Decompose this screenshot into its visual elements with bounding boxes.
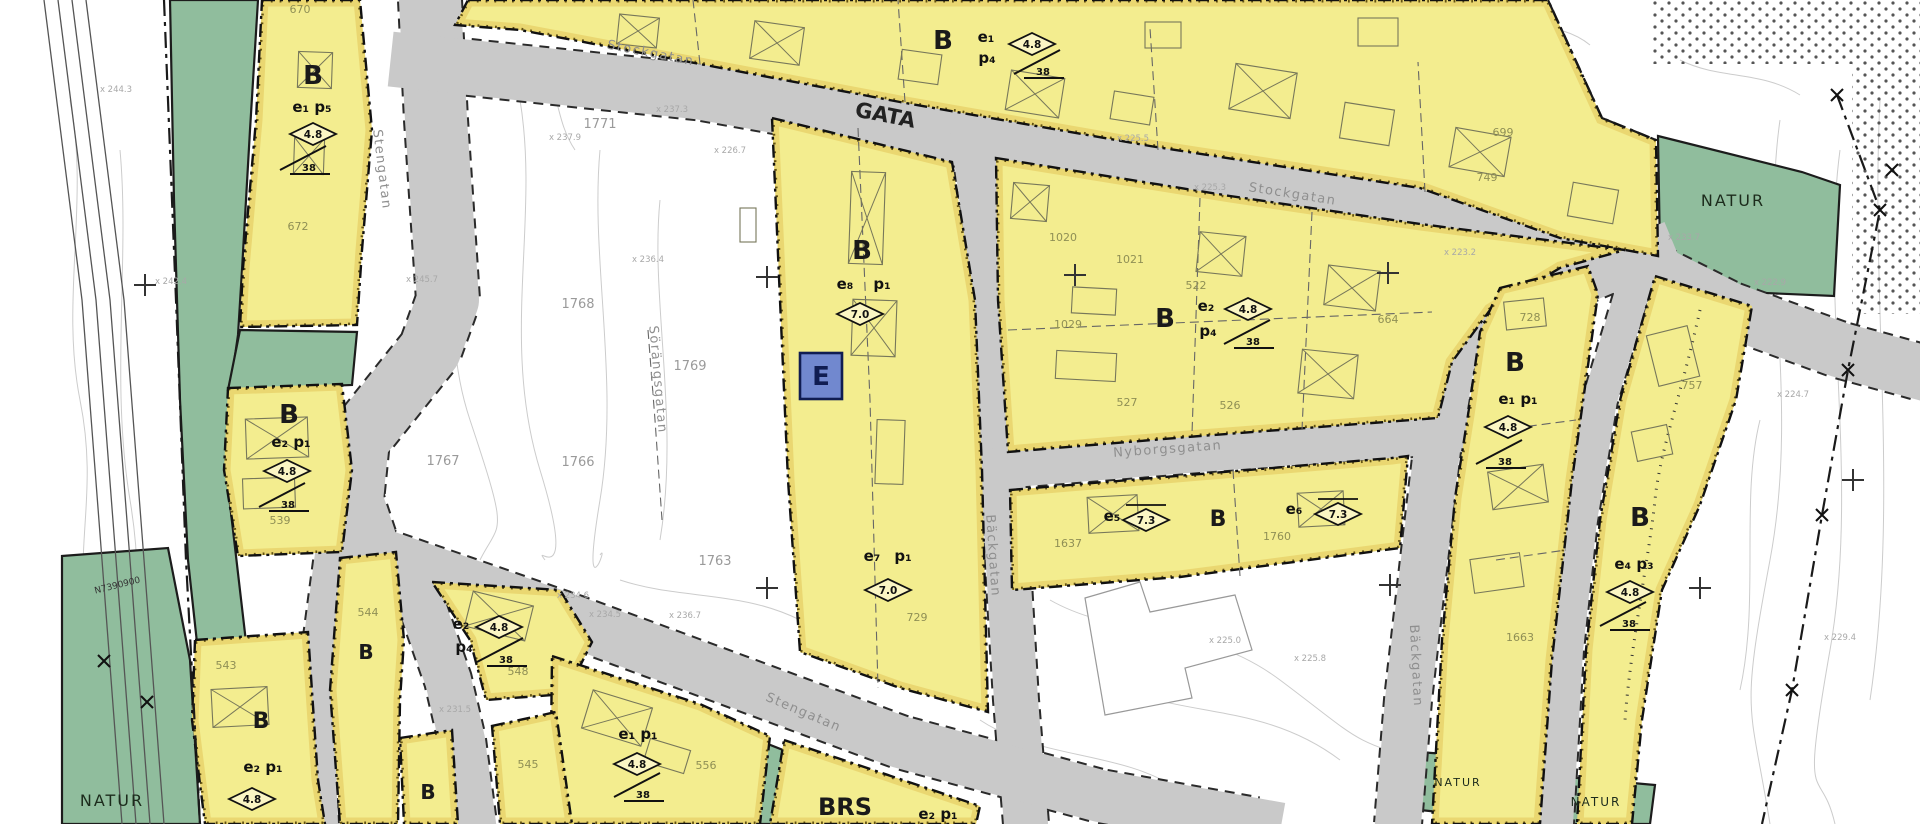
use-code-label: e₇ bbox=[864, 547, 881, 565]
nature-label: NATUR bbox=[80, 791, 144, 810]
use-code-label: e₂ p₁ bbox=[918, 805, 957, 823]
lot-number: 548 bbox=[508, 665, 529, 678]
use-code-label: e₈ bbox=[837, 275, 854, 293]
lot-number: 729 bbox=[907, 611, 928, 624]
elevation-mark: x 234.6 bbox=[557, 591, 589, 601]
lot-number: 1769 bbox=[673, 359, 706, 374]
nature-label: NATUR bbox=[1701, 191, 1765, 210]
use-code-label: p₄ bbox=[455, 638, 472, 656]
diamond-value: 7.0 bbox=[851, 309, 870, 321]
lot-number: 1771 bbox=[583, 117, 616, 132]
elevation-mark: x 244.3 bbox=[100, 85, 132, 95]
lot-number: 670 bbox=[290, 3, 311, 16]
nature-label: NATUR bbox=[1434, 776, 1481, 789]
lot-number: 1637 bbox=[1054, 537, 1082, 550]
lot-number: 1021 bbox=[1116, 253, 1144, 266]
diamond-value: 4.8 bbox=[1621, 587, 1640, 599]
diamond-value: 4.8 bbox=[1239, 304, 1258, 316]
use-code-label: e₂ p₁ bbox=[243, 758, 282, 776]
zone-letter: B bbox=[1505, 348, 1525, 378]
lot-number: 699 bbox=[1493, 126, 1514, 139]
diamond-value: 4.8 bbox=[278, 466, 297, 478]
lot-number: 544 bbox=[358, 606, 379, 619]
diamond-value: 4.8 bbox=[1499, 422, 1518, 434]
slope-value: 38 bbox=[1036, 67, 1050, 78]
zone-letter: B bbox=[420, 780, 435, 804]
elevation-mark: x 225.0 bbox=[1209, 636, 1241, 646]
elevation-mark: x 236.7 bbox=[669, 611, 701, 621]
zone-letter: B bbox=[279, 400, 299, 430]
zoning-plan-map: E4.84.87.04.87.37.34.84.84.84.84.84.87.0… bbox=[0, 0, 1920, 824]
lot-number: 672 bbox=[288, 220, 309, 233]
lot-number: 1029 bbox=[1054, 318, 1082, 331]
dotted-terrain bbox=[1852, 62, 1920, 314]
lot-number: 1767 bbox=[426, 454, 459, 469]
elevation-mark: x 225.3 bbox=[1194, 183, 1226, 193]
slope-value: 38 bbox=[1246, 337, 1260, 348]
elevation-mark: x 234.5 bbox=[589, 610, 621, 620]
use-code-label: e₆ bbox=[1286, 500, 1303, 518]
elevation-mark: x 224.7 bbox=[1777, 390, 1809, 400]
use-code-label: e₁ p₁ bbox=[1498, 390, 1537, 408]
elevation-mark: x 225.5 bbox=[1117, 134, 1149, 144]
map-canvas: E4.84.87.04.87.37.34.84.84.84.84.84.87.0… bbox=[0, 0, 1920, 824]
lot-number: 757 bbox=[1682, 379, 1703, 392]
diamond-value: 7.0 bbox=[879, 585, 898, 597]
lot-number: 545 bbox=[518, 758, 539, 771]
slope-value: 38 bbox=[302, 163, 316, 174]
elevation-mark: x 233.7 bbox=[1668, 233, 1700, 243]
lot-number: 749 bbox=[1477, 171, 1498, 184]
lot-number: 527 bbox=[1117, 396, 1138, 409]
zone-letter: B bbox=[358, 640, 373, 664]
use-code-label: p₄ bbox=[1199, 322, 1216, 340]
use-code-label: p₄ bbox=[978, 49, 995, 67]
elevation-mark: x 226.7 bbox=[714, 146, 746, 156]
elevation-mark: x 229.4 bbox=[1824, 633, 1856, 643]
lot-number: 728 bbox=[1520, 311, 1541, 324]
diamond-value: 4.8 bbox=[243, 794, 262, 806]
lot-number: 556 bbox=[696, 759, 717, 772]
use-code-label: e₁ p₁ bbox=[618, 725, 657, 743]
elevation-mark: x 245.7 bbox=[406, 275, 438, 285]
nature-label: NATUR bbox=[1571, 795, 1622, 809]
elevation-mark: x 242.4 bbox=[155, 277, 187, 287]
use-code-label: p₁ bbox=[894, 547, 911, 565]
use-code-label: e₁ p₅ bbox=[292, 98, 331, 116]
lot-number: 1768 bbox=[561, 297, 594, 312]
lot-number: 1766 bbox=[561, 455, 594, 470]
diamond-value: 4.8 bbox=[304, 129, 323, 141]
diamond-value: 7.3 bbox=[1329, 509, 1348, 521]
elevation-mark: x 222.9 bbox=[1754, 278, 1786, 288]
lot-number: 522 bbox=[1186, 279, 1207, 292]
lot-number: 1020 bbox=[1049, 231, 1077, 244]
zone-letter: B bbox=[1630, 503, 1650, 533]
slope-value: 38 bbox=[281, 500, 295, 511]
use-code-label: e₄ p₃ bbox=[1614, 555, 1653, 573]
use-code-label: e₁ bbox=[978, 28, 995, 46]
zone-nature bbox=[228, 330, 357, 390]
lot-number: 1760 bbox=[1263, 530, 1291, 543]
diamond-value: 7.3 bbox=[1137, 515, 1156, 527]
elevation-mark: x 231.5 bbox=[439, 705, 471, 715]
zone-letter: B bbox=[1155, 304, 1175, 334]
brs-label: BRS bbox=[818, 793, 872, 821]
zone-letter: B bbox=[852, 236, 872, 266]
zone-letter: B bbox=[303, 61, 323, 91]
slope-value: 38 bbox=[636, 790, 650, 801]
zone-letter: B bbox=[253, 709, 270, 734]
zone-letter: B bbox=[933, 26, 953, 56]
use-code-label: e₂ bbox=[453, 615, 470, 633]
dotted-terrain bbox=[1650, 0, 1920, 64]
elevation-mark: x 237.9 bbox=[549, 133, 581, 143]
use-code-label: e₂ p₁ bbox=[271, 433, 310, 451]
lot-number: 1663 bbox=[1506, 631, 1534, 644]
lot-number: 664 bbox=[1378, 313, 1399, 326]
elevation-mark: x 237.3 bbox=[656, 105, 688, 115]
zone-letter: B bbox=[1210, 507, 1227, 532]
use-code-label: e₂ bbox=[1198, 297, 1215, 315]
lot-number: 1763 bbox=[698, 554, 731, 569]
tech-area-label: E bbox=[812, 362, 830, 392]
diamond-value: 4.8 bbox=[628, 759, 647, 771]
diamond-value: 4.8 bbox=[1023, 39, 1042, 51]
lot-number: 539 bbox=[270, 514, 291, 527]
elevation-mark: x 223.2 bbox=[1444, 248, 1476, 258]
use-code-label: e₅ bbox=[1104, 507, 1121, 525]
diamond-value: 4.8 bbox=[490, 622, 509, 634]
lot-number: 526 bbox=[1220, 399, 1241, 412]
lot-number: 543 bbox=[216, 659, 237, 672]
elevation-mark: x 225.8 bbox=[1294, 654, 1326, 664]
use-code-label: p₁ bbox=[873, 275, 890, 293]
slope-value: 38 bbox=[1622, 619, 1636, 630]
elevation-mark: x 236.4 bbox=[632, 255, 664, 265]
slope-value: 38 bbox=[1498, 457, 1512, 468]
